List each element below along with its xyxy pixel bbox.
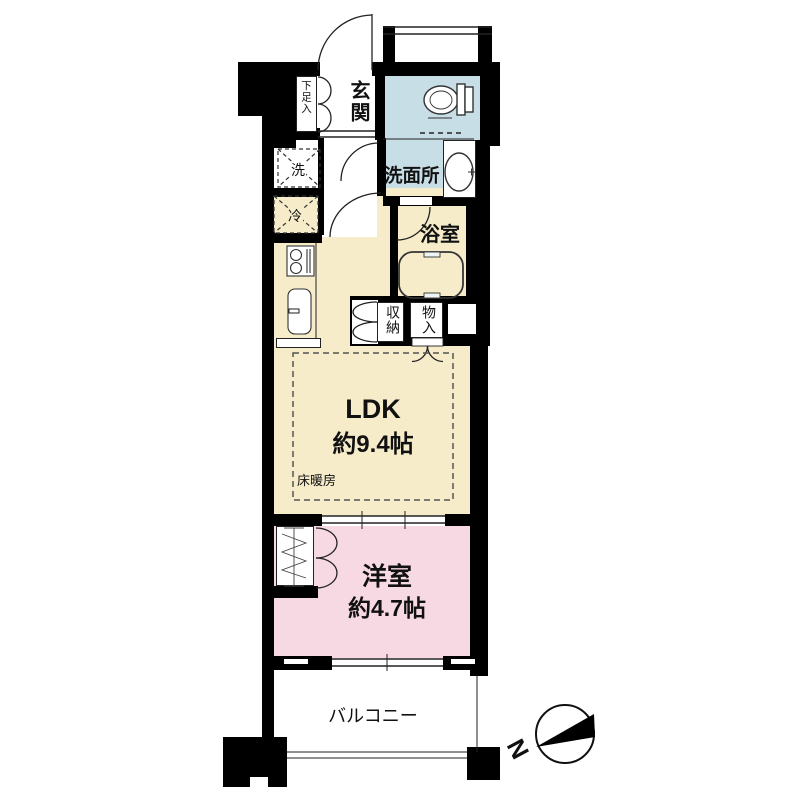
wall-notch [284,659,308,664]
wall [375,70,385,140]
toilet-room-floor [380,70,480,140]
shoe-cabinet-label: 下足入 [299,80,314,115]
washing-machine-label: 洗 [290,160,306,180]
pillar-notch [250,777,268,787]
balcony-pillar [467,747,500,780]
washroom-label: 洗面所 [384,162,440,188]
closet-label: 物入 [419,305,439,335]
wall [480,62,500,146]
entrance-step [318,131,375,137]
wall [318,138,324,235]
western-room-size: 約4.7帖 [307,589,467,623]
storage-box-blank [448,304,476,334]
compass-north-label: N [500,735,534,765]
wall-notch [451,659,475,664]
wall [262,140,274,740]
floor-heating-label: 床暖房 [297,470,336,489]
compass-icon [536,705,595,763]
vanity-counter [443,140,476,198]
wall [383,26,395,66]
wall [284,62,320,76]
wall [476,140,490,202]
kitchen-counter-end [276,338,321,348]
storage-label: 収納 [383,305,403,335]
entrance-label: 玄関 [344,80,373,124]
ldk-size: 約9.4帖 [293,424,453,459]
refrigerator-label: 冷 [287,206,303,226]
ldk-label: LDK [293,394,453,425]
wall [274,233,322,243]
western-room-label: 洋室 [307,557,467,593]
balcony-label: バルコニー [293,702,453,728]
wall [390,202,398,305]
shoe-cabinet-doors [318,77,331,132]
wall [274,514,322,526]
floor-plan: 玄関 下足入 洗 冷 洗面所 浴室 収納 物入 LDK 約9.4帖 床暖房 洋室… [0,0,800,800]
porch-railing [383,27,492,34]
door-opening [352,300,378,344]
wall [470,346,488,676]
wall [478,26,492,66]
entrance-door [318,14,372,70]
wall [466,196,490,306]
hallway-floor [322,186,377,237]
door-opening [400,197,432,205]
bathroom-label: 浴室 [420,218,460,247]
hall-door-swing [341,143,378,181]
